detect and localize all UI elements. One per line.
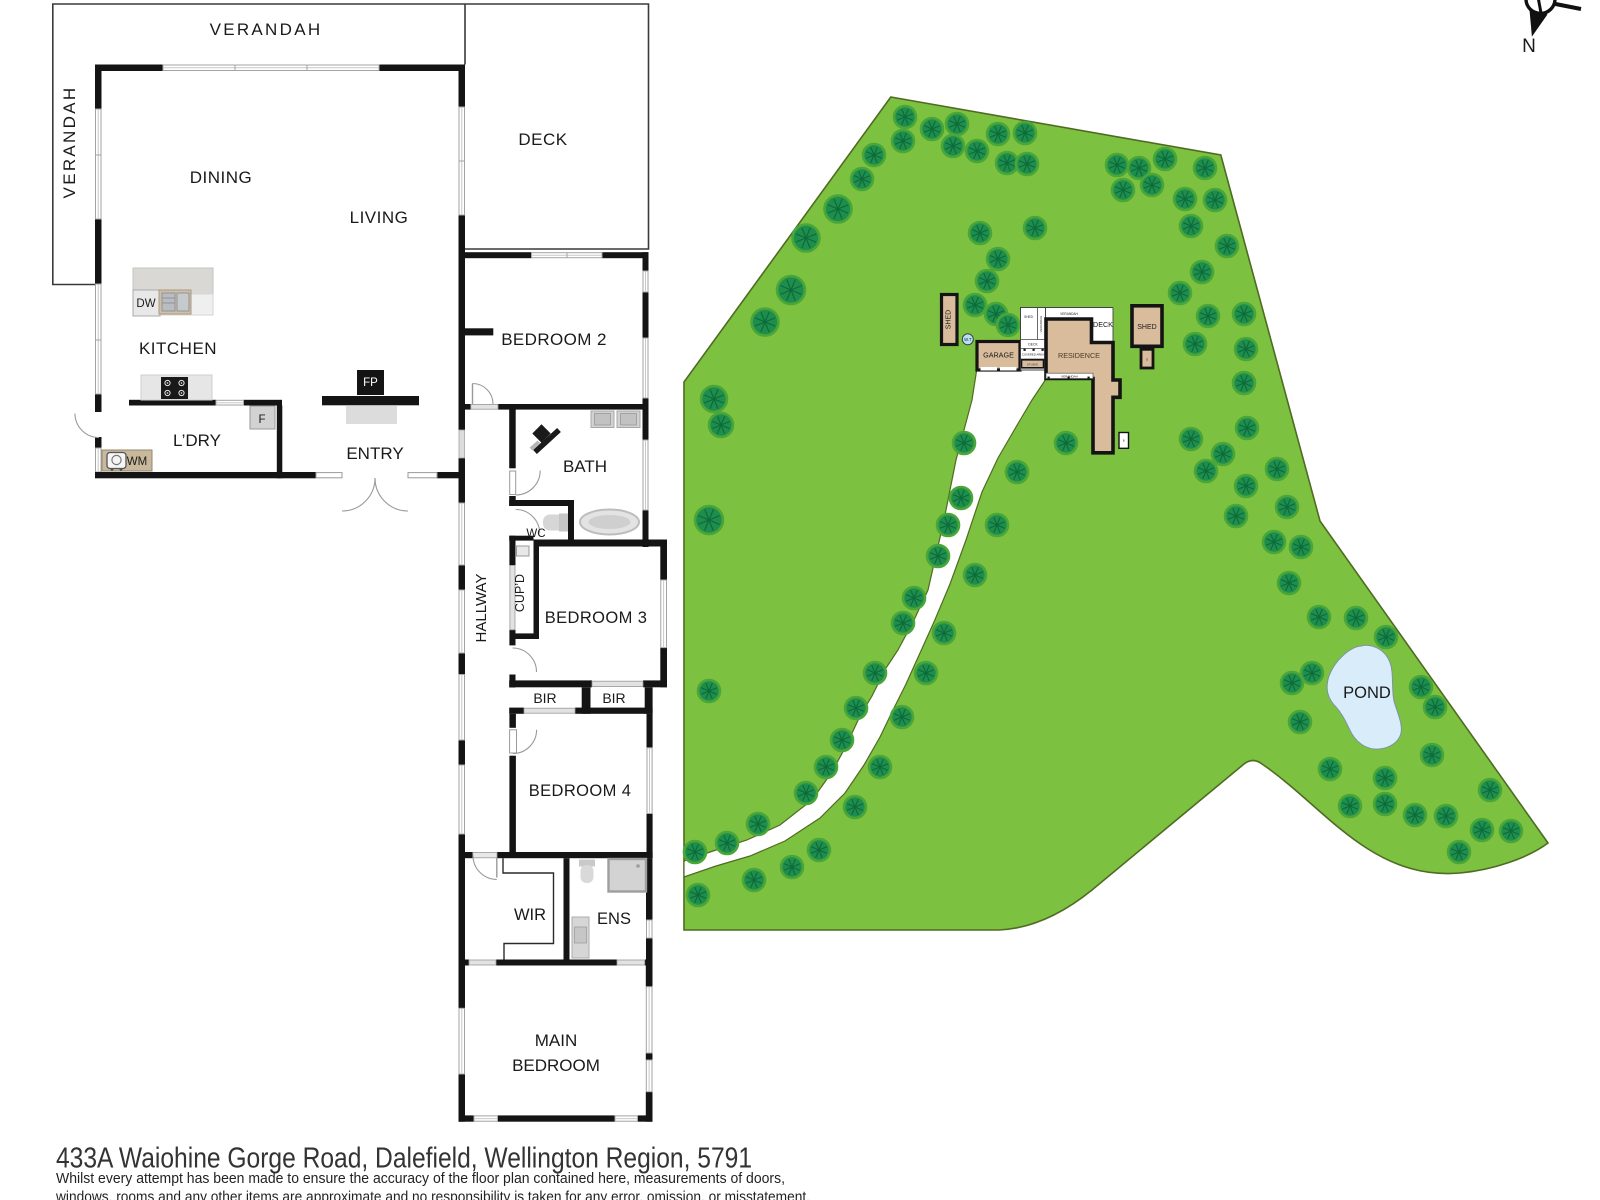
svg-text:DECK: DECK: [1093, 320, 1113, 329]
svg-text:COVERED AREA: COVERED AREA: [1022, 353, 1044, 357]
svg-text:LIVING: LIVING: [350, 208, 409, 227]
svg-text:VERANDAH: VERANDAH: [210, 20, 323, 39]
svg-text:BIR: BIR: [602, 690, 625, 706]
svg-text:DECK: DECK: [1028, 343, 1038, 347]
svg-text:ENTRY: ENTRY: [346, 444, 403, 463]
svg-text:KITCHEN: KITCHEN: [139, 339, 217, 358]
svg-text:GARAGE: GARAGE: [983, 351, 1014, 360]
svg-text:ENS: ENS: [597, 910, 631, 928]
svg-text:POND: POND: [1343, 684, 1391, 702]
svg-text:Whilst every attempt has been: Whilst every attempt has been made to en…: [56, 1171, 785, 1187]
svg-text:VERANDAH: VERANDAH: [1039, 316, 1043, 333]
svg-text:DW: DW: [136, 298, 155, 310]
svg-text:B: B: [1123, 439, 1125, 443]
svg-text:FP: FP: [363, 377, 378, 389]
svg-text:MAIN: MAIN: [535, 1031, 578, 1050]
svg-text:DECK: DECK: [518, 130, 567, 149]
svg-text:SHED: SHED: [1137, 324, 1156, 331]
svg-text:BEDROOM 2: BEDROOM 2: [501, 330, 607, 349]
svg-text:RESIDENCE: RESIDENCE: [1058, 351, 1100, 360]
svg-text:VERANDAH: VERANDAH: [1060, 312, 1078, 316]
svg-text:VERANDAH: VERANDAH: [60, 86, 79, 199]
svg-text:BEDROOM 4: BEDROOM 4: [529, 782, 632, 800]
svg-text:W.T: W.T: [964, 337, 972, 342]
svg-text:HALLWAY: HALLWAY: [473, 574, 490, 643]
svg-text:SHED: SHED: [946, 310, 953, 329]
svg-text:BATH: BATH: [563, 457, 607, 476]
svg-text:STUDIO: STUDIO: [1027, 363, 1039, 367]
svg-text:BIR: BIR: [533, 690, 556, 706]
svg-text:S: S: [1146, 358, 1148, 362]
svg-text:F: F: [258, 414, 265, 426]
svg-text:WM: WM: [127, 456, 147, 468]
svg-text:WC: WC: [526, 528, 545, 540]
svg-text:windows, rooms and any other i: windows, rooms and any other items are a…: [55, 1190, 810, 1200]
svg-text:CUP’D: CUP’D: [513, 574, 527, 612]
svg-text:SHED: SHED: [1024, 315, 1034, 319]
svg-text:L’DRY: L’DRY: [173, 431, 221, 450]
svg-text:433A Waiohine Gorge Road, Dale: 433A Waiohine Gorge Road, Dalefield, Wel…: [56, 1143, 752, 1175]
svg-text:N: N: [1522, 36, 1536, 57]
svg-text:BEDROOM: BEDROOM: [512, 1056, 600, 1075]
svg-text:WIR: WIR: [514, 906, 546, 924]
svg-text:BEDROOM 3: BEDROOM 3: [545, 609, 648, 627]
svg-text:DINING: DINING: [190, 168, 253, 187]
